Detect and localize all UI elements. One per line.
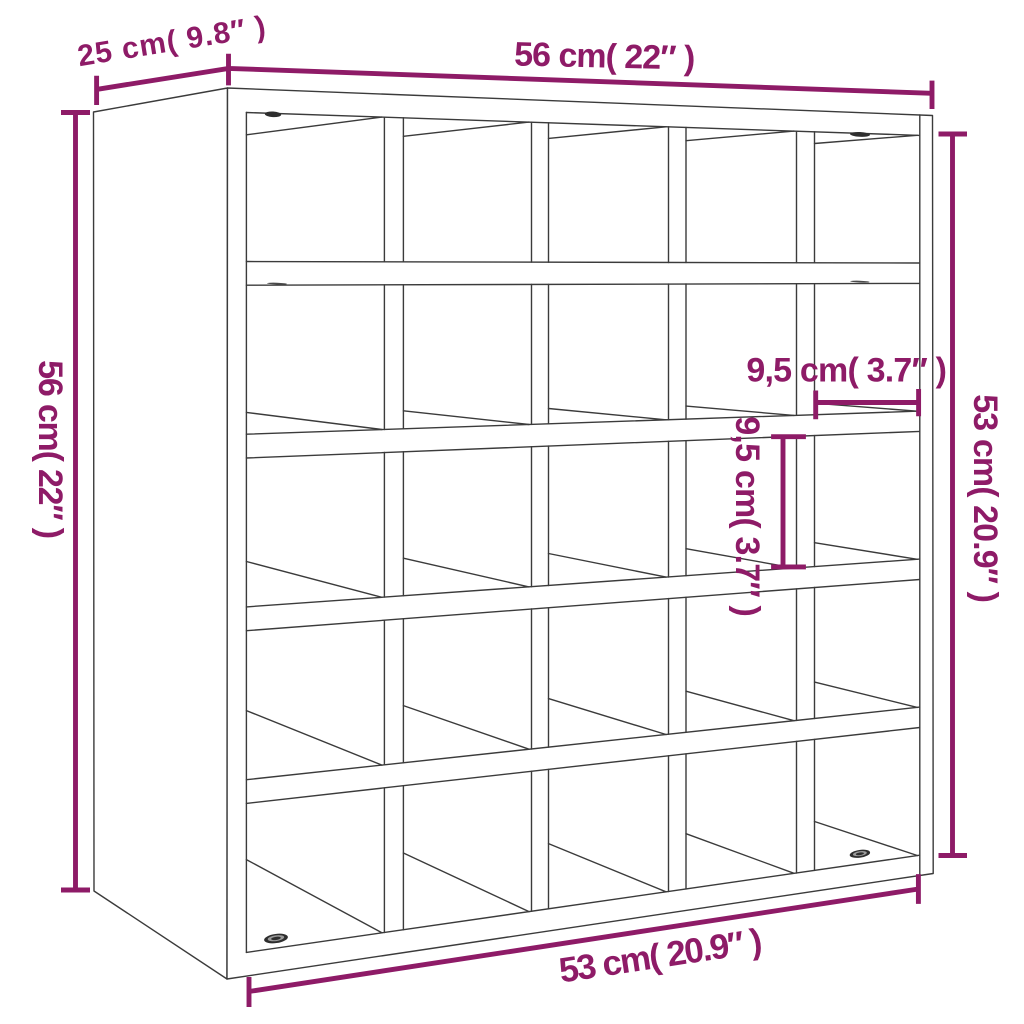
svg-text:9,5 cm( 3.7″ ): 9,5 cm( 3.7″ ) xyxy=(728,416,766,616)
svg-text:56 cm( 22″ ): 56 cm( 22″ ) xyxy=(31,360,69,538)
svg-text:56 cm( 22″ ): 56 cm( 22″ ) xyxy=(514,35,695,77)
svg-text:53 cm( 20.9″ ): 53 cm( 20.9″ ) xyxy=(966,394,1004,602)
svg-text:9,5 cm( 3.7″ ): 9,5 cm( 3.7″ ) xyxy=(746,351,946,389)
